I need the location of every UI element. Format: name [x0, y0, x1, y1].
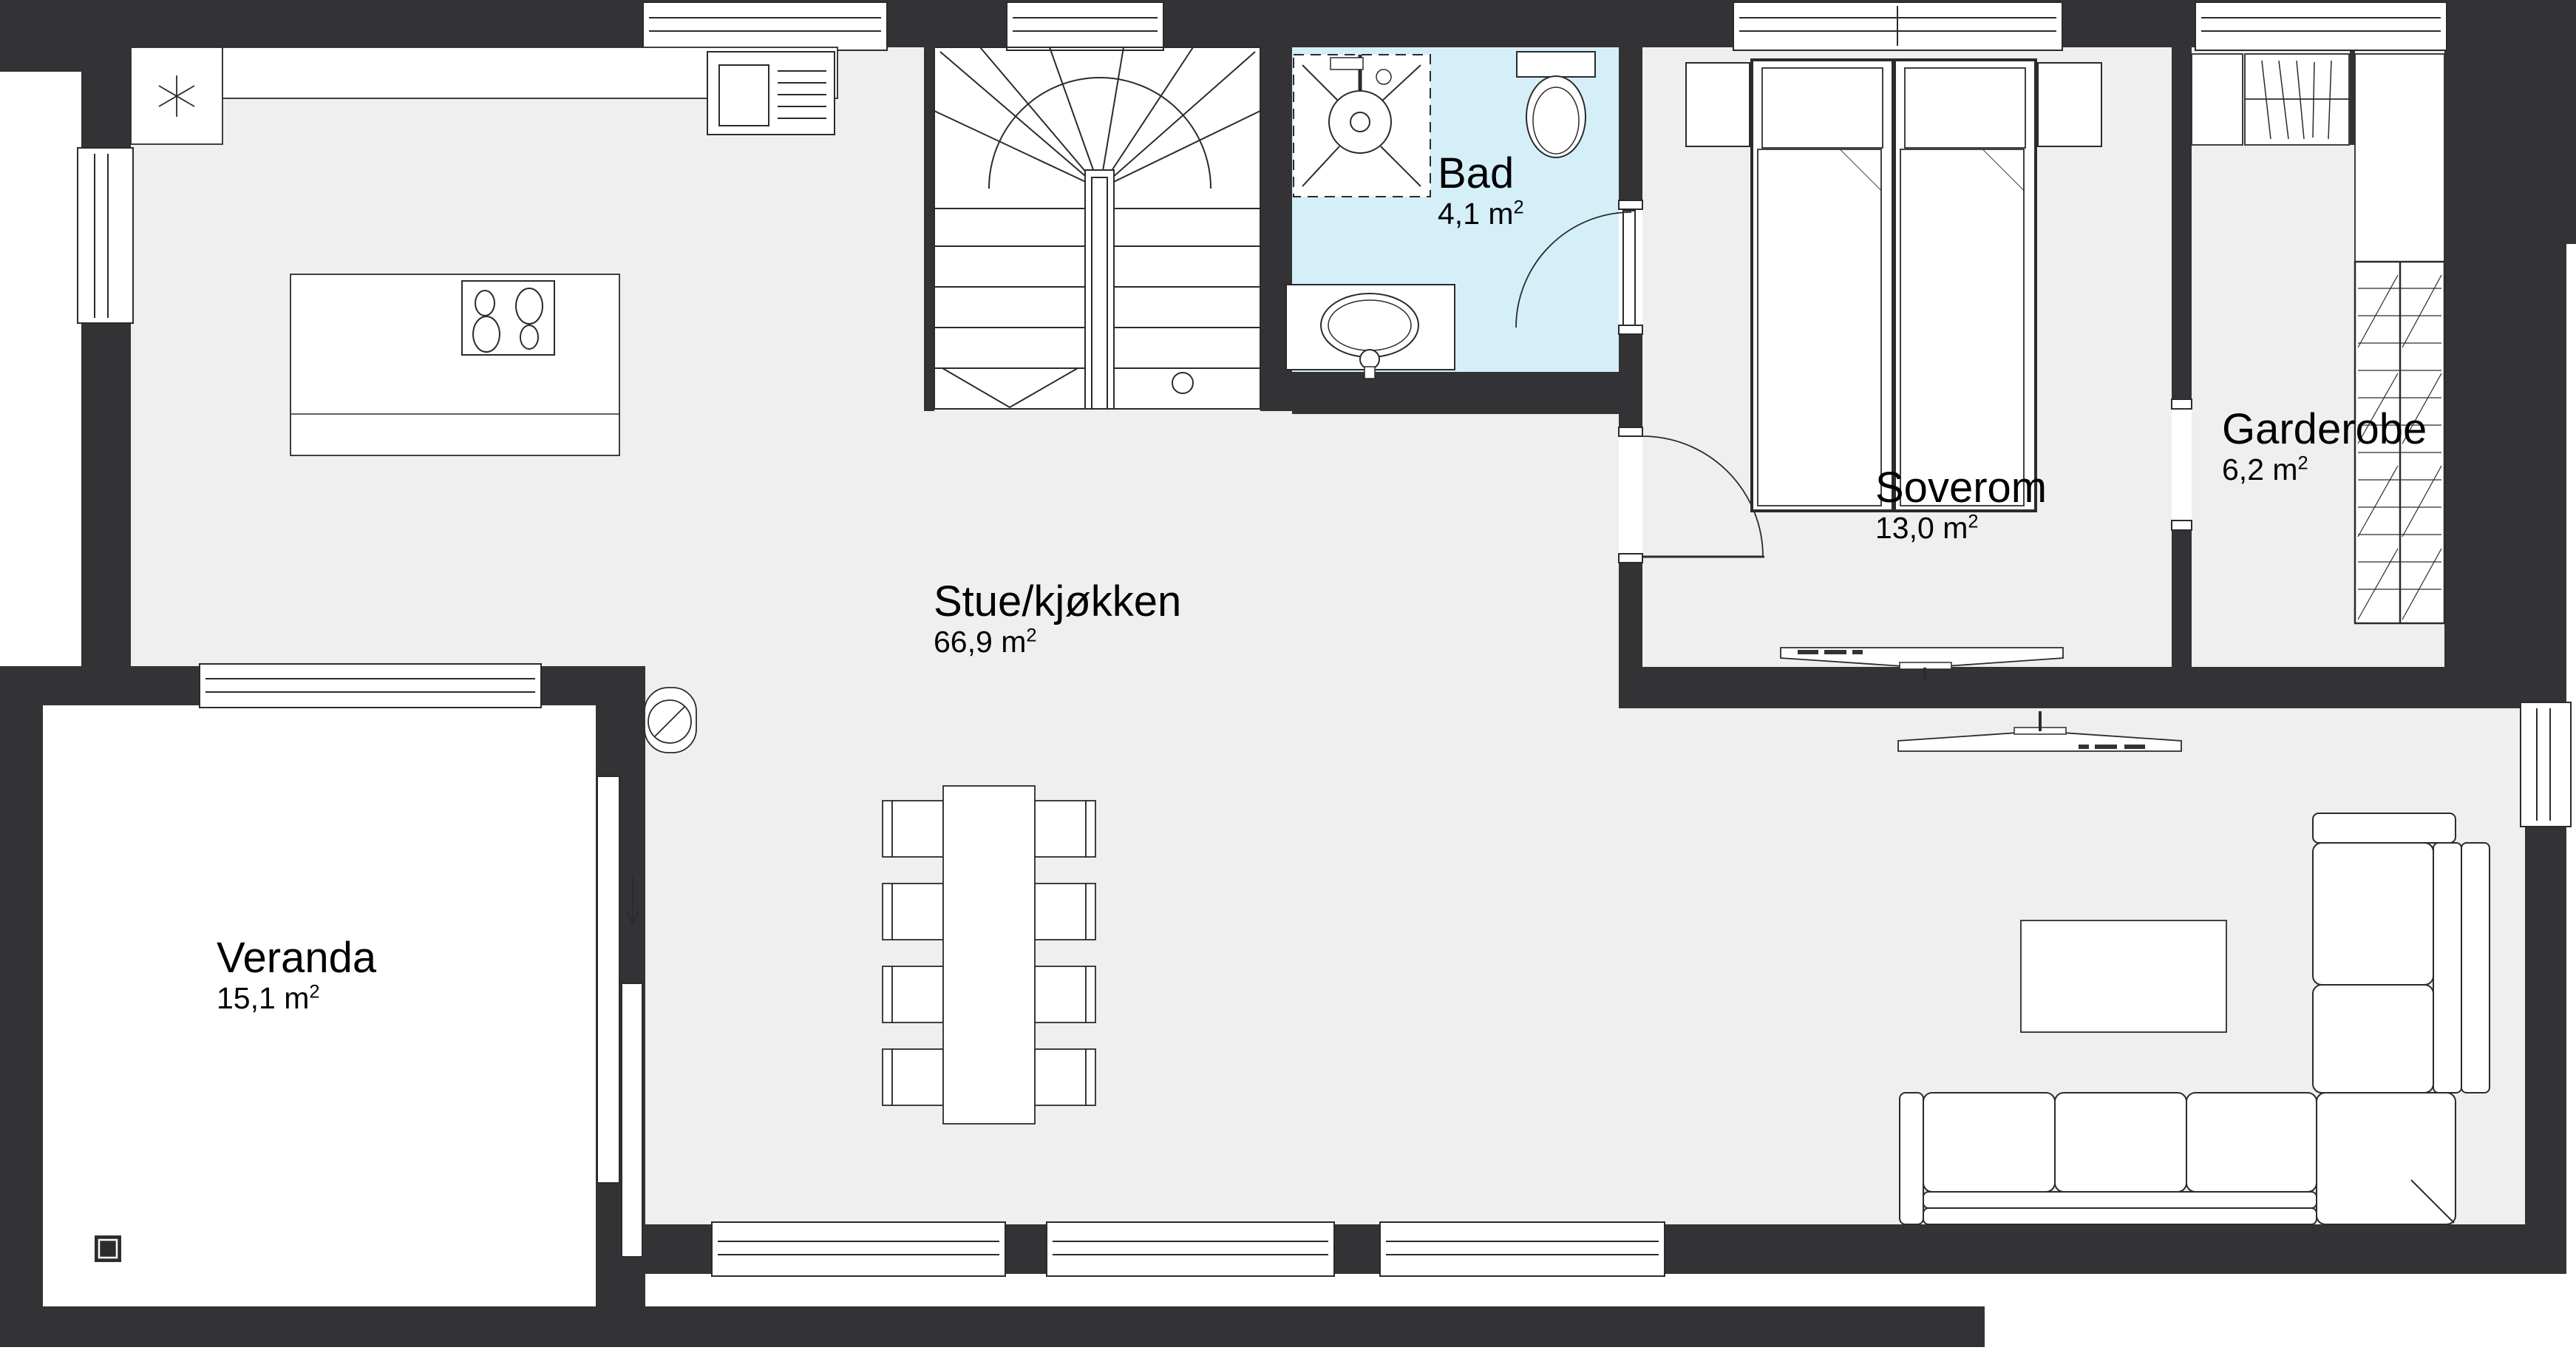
- wardrobe-hatched: [2355, 262, 2444, 623]
- window-left: [78, 148, 133, 323]
- tall-closet: [2355, 54, 2444, 262]
- kitchen-island: [290, 274, 619, 455]
- nightstand-left: [1686, 63, 1750, 146]
- bathroom-sink: [1286, 285, 1455, 379]
- window-bottom-3: [1380, 1222, 1665, 1276]
- window-top-2: [1007, 2, 1163, 50]
- window-top-3: [1733, 2, 2062, 50]
- floor-plan-drawing: [0, 0, 2576, 1370]
- drain-symbol-icon: [645, 688, 696, 753]
- bed-1: [1752, 60, 1893, 511]
- nightstand-right: [2038, 63, 2101, 146]
- window-top-1: [643, 2, 887, 50]
- dining-table: [943, 786, 1035, 1124]
- hanger-closet: [2245, 54, 2349, 145]
- window-top-4: [2195, 2, 2447, 50]
- window-bottom-1: [712, 1222, 1005, 1276]
- kitchen-sink: [707, 52, 835, 135]
- coffee-table: [2021, 920, 2226, 1032]
- bed-2: [1894, 60, 2036, 511]
- veranda-post: [95, 1235, 121, 1262]
- floor-plan: Stue/kjøkken 66,9 m2 Bad 4,1 m2 Soverom …: [0, 0, 2576, 1370]
- shower: [1294, 55, 1430, 197]
- garderobe-opening: [2172, 399, 2192, 530]
- closet-box: [2192, 54, 2243, 145]
- window-veranda: [200, 664, 541, 708]
- window-right: [2521, 702, 2571, 827]
- window-bottom-2: [1047, 1222, 1334, 1276]
